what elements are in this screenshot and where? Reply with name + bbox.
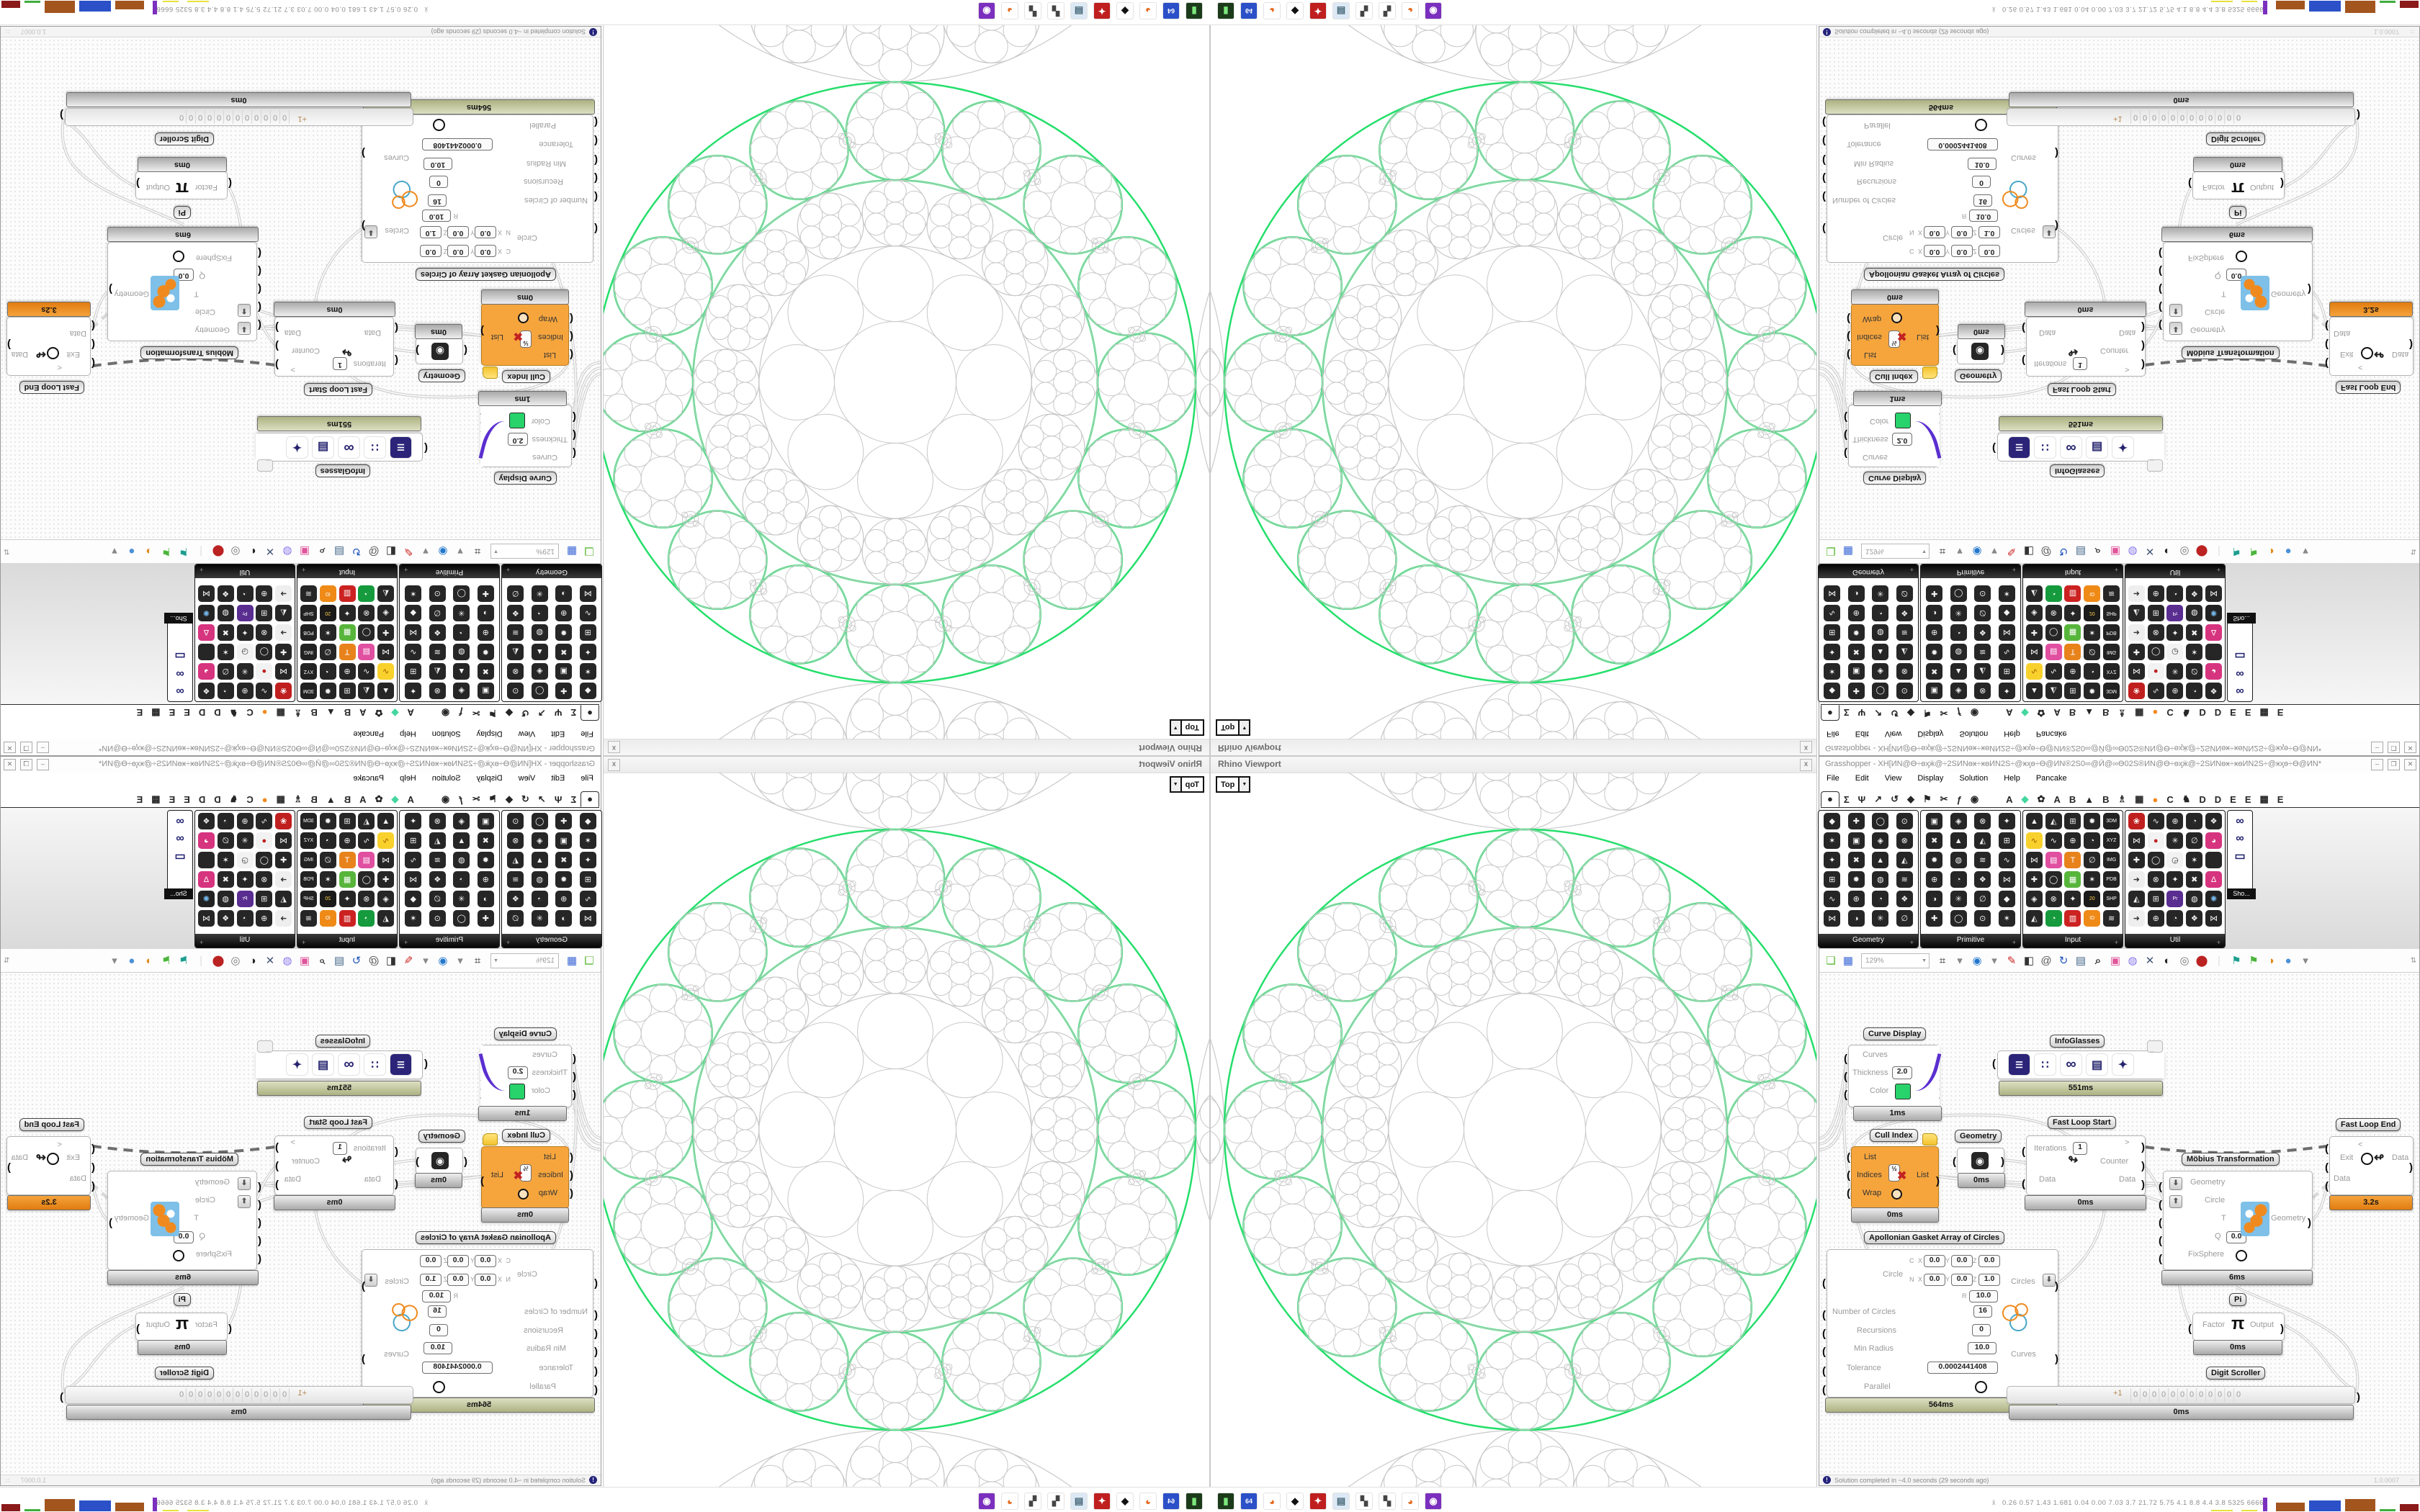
wire-grip[interactable]: )	[2357, 1394, 2360, 1401]
wire-grip[interactable]: (	[1844, 1056, 1847, 1063]
goggles-outline-icon[interactable]: ∞	[2232, 665, 2249, 682]
component-icon[interactable]: ➜	[275, 871, 292, 888]
wire-grip[interactable]: )	[275, 1144, 279, 1151]
wire-grip[interactable]: )	[2001, 1158, 2004, 1166]
component-icon[interactable]: ✦	[580, 852, 596, 868]
digit-cell[interactable]: 0	[2177, 1388, 2187, 1402]
toolbar-scroll-icon[interactable]: ⇅	[2411, 957, 2416, 965]
wire-grip[interactable]: )	[2141, 323, 2145, 330]
wire-grip[interactable]: (	[1822, 1349, 1826, 1356]
axis-value[interactable]: 1.0	[1978, 1274, 2000, 1286]
component-icon[interactable]: XYZ	[2103, 663, 2120, 680]
component-icon[interactable]: ◈	[453, 813, 470, 829]
wire-grip[interactable]: (	[1822, 174, 1826, 181]
tab-category-17[interactable]: ♗	[290, 793, 307, 807]
state-down-icon[interactable]: ⬇	[2169, 322, 2182, 335]
component-icon[interactable]: ∿	[2148, 683, 2164, 699]
component-icon[interactable]: ≋	[507, 871, 524, 888]
component-icon[interactable]: ⊙	[507, 813, 524, 829]
component-icon[interactable]: ✶	[580, 832, 596, 849]
component-icon[interactable]: ⊗	[1896, 832, 1913, 849]
component-icon[interactable]: ⋈	[1824, 910, 1840, 927]
component-icon[interactable]: ✳	[2166, 832, 2183, 849]
fixsphere-toggle[interactable]	[2236, 251, 2247, 262]
component-icon[interactable]: ⊕	[237, 813, 254, 829]
wire-grip[interactable]: )	[362, 1356, 365, 1363]
axis-value[interactable]: 0.0	[1924, 1255, 1945, 1267]
component-icon[interactable]: ◍	[453, 852, 470, 868]
component-icon[interactable]: ✶	[1824, 663, 1840, 680]
digit-cell[interactable]: 0	[215, 1388, 224, 1402]
tab-category-6[interactable]: ⚑	[484, 793, 501, 807]
component-icon[interactable]: ▲	[1950, 663, 1967, 680]
component-icon[interactable]: ∿	[405, 852, 421, 868]
component-icon[interactable]: ⊞	[1824, 871, 1840, 888]
component-icon[interactable]: ✶	[1999, 585, 2015, 602]
component-icon[interactable]: ⊕	[1926, 871, 1942, 888]
component-icon[interactable]: ✳	[1950, 605, 1967, 621]
palette-more-icon[interactable]: +	[2012, 936, 2016, 948]
component-icon[interactable]: ⊗	[1896, 663, 1913, 680]
screen-icon[interactable]: ▭	[2232, 847, 2249, 864]
wire-grip[interactable]: (	[1847, 1154, 1850, 1161]
wire-grip[interactable]: (	[1822, 1387, 1826, 1394]
tab-category-19[interactable]: ●	[2148, 705, 2162, 718]
infoglasses-label[interactable]: InfoGlasses	[315, 1035, 370, 1048]
component-icon[interactable]: ◭	[1896, 852, 1913, 868]
value-recursions[interactable]: 0	[429, 1324, 448, 1336]
galapagos-icon[interactable]: ◍	[2125, 953, 2140, 968]
component-icon[interactable]: ✶	[320, 871, 336, 888]
digit-cell[interactable]: 0	[2159, 1388, 2168, 1402]
wire-grip[interactable]: (	[594, 1312, 598, 1319]
notepad-icon[interactable]: ▤	[1070, 1493, 1088, 1510]
wire-grip[interactable]: (	[1844, 431, 1847, 438]
component-icon[interactable]: ⊕	[478, 871, 494, 888]
shaded-icon[interactable]: ⬤	[2195, 953, 2209, 968]
speech-bubble-icon[interactable]	[257, 1040, 273, 1053]
palette-panel-label[interactable]: Input+	[2023, 934, 2123, 948]
tab-category-4[interactable]: ↺	[1886, 705, 1903, 719]
curve-display-label[interactable]: Curve Display	[1863, 1027, 1926, 1040]
component-icon[interactable]: ✶	[1824, 832, 1840, 849]
wire-grip[interactable]: (	[2022, 1181, 2025, 1188]
digit-cell[interactable]: 0	[2187, 110, 2196, 124]
drive-icon[interactable]: ▮	[1217, 1493, 1234, 1510]
shaded-icon[interactable]: ⬤	[2195, 544, 2209, 559]
tab-category-6[interactable]: ⚑	[1919, 793, 1936, 807]
apollonian-label[interactable]: Apollonian Gasket Array of Circles	[1864, 268, 2004, 281]
cluster-icon[interactable]: ▣	[297, 953, 312, 968]
component-icon[interactable]: XYZ	[300, 832, 317, 849]
component-icon[interactable]: ID	[2084, 585, 2100, 602]
component-icon[interactable]: ◍	[532, 871, 548, 888]
component-icon[interactable]: ⊗	[2045, 605, 2062, 621]
mobius-label[interactable]: Möbius Transformation	[2182, 346, 2280, 359]
component-icon[interactable]: 3DM	[2103, 813, 2120, 829]
viewport-close-icon[interactable]: x	[1800, 759, 1812, 771]
minimize-button[interactable]: –	[2371, 759, 2383, 770]
toolbar-scroll-icon[interactable]: ⇅	[4, 957, 9, 965]
palette-more-icon[interactable]: +	[2012, 564, 2016, 576]
wrap-toggle[interactable]	[518, 1189, 529, 1200]
component-icon[interactable]: ◭	[2128, 605, 2145, 621]
component-icon[interactable]: ❖	[198, 813, 215, 829]
state-up-icon[interactable]: ⬆	[238, 1195, 251, 1208]
component-icon[interactable]: ▣	[1926, 683, 1942, 699]
wire-grip[interactable]: (	[2325, 1164, 2329, 1171]
preview-on-icon[interactable]: ⚑	[2246, 953, 2261, 968]
menu-item-solution[interactable]: Solution	[1959, 774, 1988, 788]
exit-toggle[interactable]	[47, 1153, 59, 1165]
gh-titlebar[interactable]: Grasshopper - XH[ИN@Ө÷ѳӽӝ@÷2SИNѳӿ÷ӿѳИN2S…	[1819, 739, 2419, 755]
component-icon[interactable]: ◔	[532, 891, 548, 907]
component-icon[interactable]: ▣	[1926, 813, 1942, 829]
component-icon[interactable]: ⊗	[507, 832, 524, 849]
gh-titlebar[interactable]: Grasshopper - XH[ИN@Ө÷ѳӽӝ@÷2SИNѳӿ÷ӿѳИN2S…	[1, 757, 601, 773]
component-icon[interactable]: ⊕	[555, 891, 572, 907]
component-icon[interactable]: ⊕	[2166, 683, 2183, 699]
wire-grip[interactable]: )	[2409, 1164, 2413, 1171]
tab-category-21[interactable]: ♞	[225, 793, 243, 807]
component-icon[interactable]: ◔	[320, 832, 336, 849]
component-icon[interactable]: ◍	[1950, 644, 1967, 660]
wire-grip[interactable]: (	[1847, 351, 1850, 358]
wire-grip[interactable]: (	[2325, 1183, 2329, 1190]
component-icon[interactable]: ✳	[1872, 585, 1888, 602]
component-icon[interactable]: ◶	[2166, 644, 2183, 660]
component-icon[interactable]: ◔	[218, 813, 234, 829]
tab-category-26[interactable]: ▩	[2255, 705, 2272, 719]
wire-grip[interactable]: (	[464, 1158, 467, 1166]
wire-grip[interactable]: (	[424, 1061, 428, 1068]
menu-item-help[interactable]: Help	[400, 774, 416, 788]
save-file-icon[interactable]: ▦	[565, 953, 579, 968]
tab-category-12[interactable]: ✿	[371, 793, 387, 807]
component-icon[interactable]: ⋈	[1999, 871, 2015, 888]
component-icon[interactable]: ✚	[2026, 871, 2043, 888]
component-icon[interactable]: ⋈	[1999, 624, 2015, 641]
digit-scroller-label[interactable]: Digit Scroller	[2206, 1367, 2265, 1380]
component-icon[interactable]: ◈	[1950, 683, 1967, 699]
component-icon[interactable]: ✶	[405, 910, 421, 927]
tab-category-11[interactable]: ◆	[2017, 793, 2033, 807]
component-icon[interactable]: ⊕	[256, 910, 272, 927]
wire-grip[interactable]: (	[570, 1172, 573, 1179]
blue-sphere-icon[interactable]: ●	[2281, 544, 2295, 559]
checker-icon[interactable]: ▚	[1355, 1493, 1373, 1510]
axis-value[interactable]: 0.0	[1951, 1255, 1973, 1267]
component-icon[interactable]: ◍	[2186, 605, 2202, 621]
component-icon[interactable]: ⊕	[2166, 813, 2183, 829]
component-icon[interactable]: ⊙	[1974, 910, 1991, 927]
component-icon[interactable]: ⊗	[2045, 891, 2062, 907]
chevron-down-icon[interactable]: ▾	[2298, 953, 2313, 968]
archive-icon[interactable]: ▤	[2086, 436, 2108, 459]
open-file-icon[interactable]: ❏	[1824, 544, 1838, 559]
menu-item-view[interactable]: View	[519, 774, 536, 788]
component-icon[interactable]: ✚	[1848, 683, 1865, 699]
tab-category-1[interactable]: Σ	[566, 794, 581, 807]
zoom-combo[interactable]: 129%▼	[490, 953, 559, 968]
component-icon[interactable]: ◔	[237, 910, 254, 927]
component-icon[interactable]: ✦	[2064, 891, 2081, 907]
wire-grip[interactable]: (	[2159, 249, 2162, 256]
component-icon[interactable]: ✺	[2205, 891, 2222, 907]
wire-grip[interactable]: )	[2409, 341, 2413, 348]
wire-grip[interactable]: )	[2357, 111, 2360, 118]
component-icon[interactable]: ✹	[2084, 683, 2100, 699]
viewport-close-icon[interactable]: x	[608, 759, 620, 771]
tab-category-3[interactable]: ↗	[1870, 793, 1886, 807]
wire-grip[interactable]: (	[1822, 1280, 1826, 1287]
wire-grip[interactable]: )	[1936, 1178, 1940, 1185]
component-icon[interactable]: ◶	[237, 852, 254, 868]
component-icon[interactable]: ◑	[1926, 891, 1942, 907]
menu-item-solution[interactable]: Solution	[432, 774, 461, 788]
digit-cell[interactable]: 0	[2196, 110, 2205, 124]
component-icon[interactable]: ✚	[2128, 644, 2145, 660]
component-icon[interactable]: ✚	[377, 871, 394, 888]
component-icon[interactable]: ◍	[218, 891, 234, 907]
axis-value[interactable]: 0.0	[1924, 1274, 1945, 1286]
component-icon[interactable]: ◯	[2148, 852, 2164, 868]
apollonian-label[interactable]: Apollonian Gasket Array of Circles	[416, 1231, 556, 1244]
digit-cell[interactable]: 0	[2205, 1388, 2215, 1402]
component-icon[interactable]: ⊕	[2064, 832, 2081, 849]
tab-category-4[interactable]: ↺	[517, 793, 534, 807]
tab-category-13[interactable]: A	[355, 794, 370, 807]
component-icon[interactable]: ⋈	[2205, 910, 2222, 927]
tab-category-14[interactable]: B	[2065, 705, 2080, 718]
viewport-close-icon[interactable]: x	[1800, 741, 1812, 753]
component-icon[interactable]: ◯	[1950, 910, 1967, 927]
component-icon[interactable]: ◔	[2166, 910, 2183, 927]
tab-category-19[interactable]: ●	[258, 794, 272, 807]
wire-grip[interactable]: (	[1847, 333, 1850, 340]
component-icon[interactable]: ▣	[1848, 663, 1865, 680]
component-icon[interactable]: ▤	[2045, 644, 2062, 660]
component-icon[interactable]: ●	[256, 832, 272, 849]
search-icon[interactable]: ⌕	[2091, 953, 2105, 968]
chevron-down-icon[interactable]: ▾	[2298, 544, 2313, 559]
galapagos-icon[interactable]: ◍	[280, 953, 295, 968]
sphere-icon[interactable]: ☰	[2008, 1053, 2030, 1076]
wire-grip[interactable]: (	[1822, 1368, 1826, 1375]
half-preview-icon[interactable]: ◑	[2264, 544, 2278, 559]
wire-grip[interactable]: )	[109, 1220, 112, 1227]
component-icon[interactable]: PDB	[2103, 871, 2120, 888]
toolbar-scroll-icon[interactable]: ⇅	[2411, 548, 2416, 556]
maximize-button[interactable]: ❐	[2388, 759, 2400, 770]
component-icon[interactable]: ◭	[2045, 683, 2062, 699]
search-icon[interactable]: ⌕	[315, 953, 329, 968]
digit-cell[interactable]: 0	[2168, 110, 2177, 124]
component-icon[interactable]: ◈	[1872, 663, 1888, 680]
close-button[interactable]: ✕	[2404, 742, 2416, 753]
component-icon[interactable]: ◑	[478, 891, 494, 907]
inkscape-icon[interactable]: ◆	[1286, 1493, 1304, 1510]
component-icon[interactable]: ✦	[2166, 624, 2183, 641]
palette-more-icon[interactable]: +	[2217, 936, 2220, 948]
wire-grip[interactable]: )	[7, 1164, 11, 1171]
menu-item-display[interactable]: Display	[1917, 774, 1943, 788]
owl-icon[interactable]: ◉	[978, 1493, 995, 1510]
wire-grip[interactable]: )	[362, 1283, 365, 1290]
wire-grip[interactable]: (	[258, 1256, 261, 1263]
component-icon[interactable]: ➜	[275, 910, 292, 927]
wire-grip[interactable]: (	[258, 1238, 261, 1245]
component-icon[interactable]: ◈	[377, 891, 394, 907]
palette-more-icon[interactable]: +	[2115, 564, 2118, 576]
tab-category-18[interactable]: ▦	[2130, 793, 2148, 807]
component-icon[interactable]: ⊙	[429, 910, 446, 927]
wire-grip[interactable]: (	[395, 1148, 398, 1156]
chevron-down-icon[interactable]: ▾	[1987, 544, 2002, 559]
value-number-of-circles[interactable]: 16	[1973, 1305, 1992, 1318]
state-up-icon[interactable]: ⬆	[2169, 1195, 2182, 1208]
component-icon[interactable]: ◭	[358, 813, 375, 829]
palette-panel-label[interactable]: Geometry+	[502, 934, 601, 948]
component-icon[interactable]: ◭	[275, 891, 292, 907]
wire-grip[interactable]: (	[1847, 1172, 1850, 1179]
pi-label[interactable]: Pi	[2229, 206, 2246, 219]
resize-grip-icon[interactable]: ∷	[5, 1477, 9, 1484]
component-icon[interactable]: ✦	[1824, 644, 1840, 660]
digit-cell[interactable]: 0	[2130, 110, 2140, 124]
palette-panel-label[interactable]: Primitive+	[1921, 564, 2020, 578]
component-icon[interactable]: ✖	[2186, 624, 2202, 641]
pi-label[interactable]: Pi	[2229, 1293, 2246, 1306]
component-icon[interactable]: ⊕	[1848, 605, 1865, 621]
component-icon[interactable]: ➜	[2128, 910, 2145, 927]
preview-mesh-icon[interactable]: ◐	[246, 953, 260, 968]
gha-icon[interactable]: ↻	[2056, 953, 2071, 968]
component-icon[interactable]: ✺	[2205, 605, 2222, 621]
document-icon[interactable]: ▤	[2074, 953, 2088, 968]
gh-canvas[interactable]: Curve DisplayCurvesThickness2.0Color(((1…	[1819, 37, 2419, 539]
component-icon[interactable]: ◭	[1974, 663, 1991, 680]
component-icon[interactable]: ◑	[555, 910, 572, 927]
component-icon[interactable]: ◍	[1872, 871, 1888, 888]
chevron-down-icon[interactable]: ▾	[1987, 953, 2002, 968]
component-icon[interactable]: ✳	[532, 910, 548, 927]
component-icon[interactable]: ◭	[377, 910, 394, 927]
component-icon[interactable]: ⊗	[1974, 683, 1991, 699]
goggles-icon[interactable]: ∞	[2060, 1053, 2082, 1076]
tab-category-17[interactable]: ♗	[2114, 793, 2131, 807]
component-icon[interactable]: ▲	[377, 813, 394, 829]
axis-value[interactable]: 0.0	[1924, 226, 1945, 238]
cull-index-label[interactable]: Cull Index	[502, 1129, 550, 1142]
wire-grip[interactable]: (	[2159, 1220, 2162, 1227]
digit-cell[interactable]: 0	[2149, 1388, 2159, 1402]
component-icon[interactable]: ∿	[377, 832, 394, 849]
goggles-icon[interactable]: ∞	[172, 813, 189, 829]
digit-cell[interactable]: 0	[233, 1388, 243, 1402]
firefox-icon[interactable]: ◕	[1263, 2, 1281, 19]
axis-value[interactable]: 0.0	[1951, 226, 1973, 238]
viewport-canvas[interactable]	[1211, 773, 1816, 1493]
component-icon[interactable]: ✹	[1926, 852, 1942, 868]
component-icon[interactable]: ▲	[2026, 683, 2043, 699]
tab-category-12[interactable]: ✿	[2033, 793, 2050, 807]
scroller-digits[interactable]: 000000000000	[2130, 110, 2243, 125]
component-icon[interactable]: ❀	[275, 813, 292, 829]
component-icon[interactable]: ◆	[1824, 813, 1840, 829]
component-icon[interactable]: SHP	[2103, 891, 2120, 907]
component-icon[interactable]: ✖	[478, 832, 494, 849]
chevron-down-icon[interactable]: ▼	[1922, 549, 1927, 554]
palette-more-icon[interactable]: +	[2217, 564, 2220, 576]
value-number-of-circles[interactable]: 16	[428, 1305, 447, 1318]
firefox-icon[interactable]: ◕	[1139, 1493, 1157, 1510]
component-icon[interactable]: ✦	[1999, 813, 2015, 829]
wire-grip[interactable]: (	[2325, 341, 2329, 348]
wrap-toggle[interactable]	[1891, 312, 1902, 323]
wrap-toggle[interactable]	[1891, 1189, 1902, 1200]
wire-grip[interactable]: (	[570, 1190, 573, 1197]
component-icon[interactable]: ⊞	[256, 891, 272, 907]
chevron-down-icon[interactable]: ▾	[418, 953, 433, 968]
component-icon[interactable]: ◯	[1950, 585, 1967, 602]
wire-grip[interactable]: (	[2325, 359, 2329, 366]
component-icon[interactable]: ◯	[453, 910, 470, 927]
menu-item-file[interactable]: File	[581, 774, 593, 788]
note-icon[interactable]	[1922, 366, 1937, 379]
tab-category-2[interactable]: Ψ	[550, 794, 567, 807]
wire-grip[interactable]: (	[2159, 321, 2162, 328]
gha-icon[interactable]: ↻	[349, 953, 364, 968]
state-down-icon[interactable]: ⬇	[238, 1177, 251, 1190]
component-icon[interactable]: ❀	[2128, 813, 2145, 829]
grid-icon[interactable]: ∷	[2034, 1053, 2056, 1076]
component-icon[interactable]: ID	[320, 910, 336, 927]
component-icon[interactable]: ✳	[1950, 891, 1967, 907]
tab-category-13[interactable]: A	[2049, 705, 2064, 718]
fast-loop-start-label[interactable]: Fast Loop Start	[2048, 383, 2116, 396]
wire-grip[interactable]: (	[258, 1184, 261, 1191]
component-icon[interactable]: ✶	[1999, 910, 2015, 927]
grid-icon[interactable]: ∷	[2034, 436, 2056, 459]
axis-value[interactable]: 0.0	[447, 1255, 469, 1267]
component-icon[interactable]: ⊕	[1848, 891, 1865, 907]
viewport-header[interactable]: Rhino Viewport x	[1211, 739, 1816, 755]
sphere-icon[interactable]: ☰	[2008, 436, 2030, 459]
firefox-icon[interactable]: ◕	[1001, 1493, 1018, 1510]
fast-loop-end-label[interactable]: Fast Loop End	[19, 1118, 84, 1131]
component-icon[interactable]: ◯	[532, 813, 548, 829]
chevron-down-icon[interactable]: ▾	[107, 953, 122, 968]
component-icon[interactable]: ❖	[1896, 605, 1913, 621]
scroller-digits[interactable]: 000000000000	[2130, 1387, 2243, 1402]
checker-icon[interactable]: ▚	[1355, 2, 1373, 19]
component-icon[interactable]	[2205, 644, 2222, 660]
component-icon[interactable]: ✹	[1848, 624, 1865, 641]
component-icon[interactable]: ❖	[2205, 813, 2222, 829]
component-icon[interactable]: ➜	[2128, 871, 2145, 888]
wire-grip[interactable]: )	[480, 1178, 484, 1185]
preview-mesh-icon[interactable]: ◐	[2160, 953, 2174, 968]
digit-cell[interactable]: 0	[2196, 1388, 2205, 1402]
component-icon[interactable]: ●	[2148, 663, 2164, 680]
component-icon[interactable]: ▲	[1872, 852, 1888, 868]
tab-category-22[interactable]: D	[2195, 705, 2210, 718]
mail-icon[interactable]: @	[2039, 953, 2053, 968]
tab-category-16[interactable]: B	[2098, 705, 2113, 718]
component-icon[interactable]: ✚	[275, 852, 292, 868]
tab-category-11[interactable]: ◆	[387, 793, 403, 807]
